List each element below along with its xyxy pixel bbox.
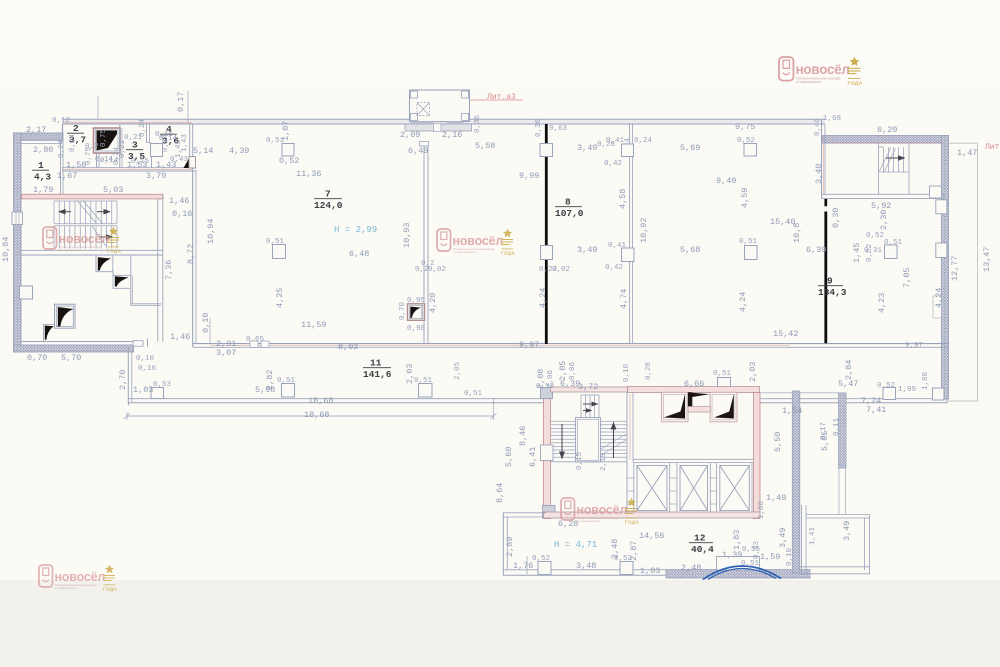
- svg-text:5,60: 5,60: [504, 447, 514, 467]
- svg-text:6,41: 6,41: [528, 447, 538, 467]
- svg-text:0,24: 0,24: [139, 118, 147, 137]
- svg-text:0,42: 0,42: [605, 264, 623, 272]
- svg-text:11,36: 11,36: [296, 169, 322, 179]
- svg-text:0,11: 0,11: [833, 417, 841, 436]
- svg-text:2,09: 2,09: [400, 130, 420, 140]
- svg-text:6,20: 6,20: [877, 125, 897, 135]
- svg-text:0,36: 0,36: [474, 114, 482, 133]
- svg-text:14,56: 14,56: [639, 531, 665, 541]
- svg-text:4,25: 4,25: [275, 288, 285, 308]
- svg-text:9: 9: [827, 276, 833, 287]
- svg-text:Н = 4,71: Н = 4,71: [554, 540, 597, 550]
- svg-text:124,0: 124,0: [314, 200, 343, 211]
- svg-text:8,64: 8,64: [495, 483, 505, 503]
- svg-text:0,53: 0,53: [153, 381, 172, 389]
- svg-text:1,54: 1,54: [782, 406, 802, 416]
- svg-text:9,99: 9,99: [519, 171, 539, 181]
- svg-text:4,58: 4,58: [618, 189, 628, 209]
- svg-text:9,75: 9,75: [735, 122, 755, 132]
- svg-text:0,16: 0,16: [138, 365, 157, 373]
- svg-text:6,66: 6,66: [684, 379, 704, 389]
- svg-text:1,88: 1,88: [922, 372, 930, 390]
- svg-text:3,49: 3,49: [577, 245, 597, 255]
- svg-text:2,05: 2,05: [558, 361, 568, 381]
- svg-text:1,67: 1,67: [57, 171, 77, 181]
- svg-text:1,46: 1,46: [169, 196, 189, 206]
- svg-text:2,87: 2,87: [629, 541, 639, 561]
- svg-text:0,95: 0,95: [407, 297, 426, 305]
- svg-text:1,56: 1,56: [66, 160, 86, 170]
- svg-text:9,97: 9,97: [519, 340, 539, 350]
- svg-text:0,24: 0,24: [113, 146, 121, 165]
- svg-text:2: 2: [73, 123, 79, 134]
- svg-text:1,49: 1,49: [766, 493, 786, 503]
- svg-text:0,51: 0,51: [741, 560, 760, 568]
- svg-text:2,17: 2,17: [26, 125, 46, 135]
- svg-text:2,70: 2,70: [118, 370, 128, 390]
- svg-text:5,92: 5,92: [871, 201, 891, 211]
- svg-text:4,3: 4,3: [34, 172, 51, 183]
- svg-text:2,05: 2,05: [454, 361, 462, 380]
- svg-text:0,51: 0,51: [884, 239, 903, 247]
- svg-text:4,24: 4,24: [934, 288, 944, 308]
- svg-text:Лит.а3: Лит.а3: [486, 93, 516, 102]
- svg-text:2,30: 2,30: [879, 210, 889, 230]
- svg-text:6,48: 6,48: [349, 249, 369, 259]
- svg-text:4,24: 4,24: [738, 292, 748, 312]
- svg-text:3,49: 3,49: [842, 521, 852, 541]
- svg-text:3,70: 3,70: [146, 171, 166, 181]
- svg-text:9,97: 9,97: [905, 342, 923, 350]
- svg-text:141,6: 141,6: [363, 369, 392, 380]
- svg-text:7: 7: [325, 189, 331, 200]
- svg-text:6,49: 6,49: [408, 146, 428, 156]
- svg-text:0,14: 0,14: [95, 156, 114, 164]
- svg-text:0,10: 0,10: [201, 313, 211, 333]
- svg-text:0,2: 0,2: [85, 143, 99, 151]
- svg-text:1,43: 1,43: [181, 133, 189, 152]
- svg-text:134,3: 134,3: [818, 287, 847, 298]
- svg-text:2,06: 2,06: [547, 369, 555, 388]
- svg-text:9,49: 9,49: [716, 176, 736, 186]
- svg-text:3,49: 3,49: [577, 143, 597, 153]
- svg-text:107,0: 107,0: [555, 208, 584, 219]
- svg-text:0,51: 0,51: [739, 238, 758, 246]
- svg-text:12,77: 12,77: [950, 255, 960, 281]
- svg-text:2,03: 2,03: [405, 364, 415, 384]
- svg-text:3,48: 3,48: [576, 561, 596, 571]
- svg-text:2,80: 2,80: [33, 145, 53, 155]
- svg-text:0,42: 0,42: [604, 160, 622, 168]
- svg-text:0,46: 0,46: [814, 117, 822, 136]
- svg-text:0,52: 0,52: [877, 382, 895, 390]
- svg-text:1,59: 1,59: [760, 552, 780, 562]
- svg-text:0,51: 0,51: [277, 377, 296, 385]
- svg-text:0,10: 0,10: [623, 363, 631, 382]
- svg-text:0,30: 0,30: [831, 208, 841, 228]
- svg-text:Н = 2,99: Н = 2,99: [334, 225, 377, 235]
- svg-text:0,41: 0,41: [608, 242, 627, 250]
- svg-text:0,75: 0,75: [100, 128, 108, 147]
- svg-text:4,23: 4,23: [877, 293, 887, 313]
- svg-text:0,51: 0,51: [464, 390, 483, 398]
- svg-text:1,00: 1,00: [758, 500, 766, 519]
- svg-text:0,16: 0,16: [172, 209, 192, 219]
- svg-text:8,46: 8,46: [518, 426, 528, 446]
- svg-text:0,52: 0,52: [532, 555, 550, 563]
- svg-text:1,79: 1,79: [33, 185, 53, 195]
- svg-text:18,68: 18,68: [304, 410, 330, 420]
- svg-text:10,93: 10,93: [402, 222, 412, 248]
- svg-text:5,50: 5,50: [773, 432, 783, 452]
- svg-text:0,02: 0,02: [552, 266, 570, 274]
- svg-text:5,03: 5,03: [103, 185, 123, 195]
- svg-text:18,68: 18,68: [308, 396, 334, 406]
- svg-text:15,42: 15,42: [773, 329, 799, 339]
- svg-text:4,24: 4,24: [538, 288, 548, 308]
- svg-text:0,90: 0,90: [407, 325, 426, 333]
- svg-text:0,24: 0,24: [162, 133, 170, 152]
- svg-text:1,47: 1,47: [957, 148, 977, 158]
- svg-text:Лит: Лит: [984, 143, 1000, 152]
- svg-text:0,15: 0,15: [131, 158, 150, 166]
- svg-text:0,51: 0,51: [713, 370, 732, 378]
- svg-text:3,49: 3,49: [778, 528, 788, 548]
- svg-text:0,06: 0,06: [569, 361, 577, 380]
- svg-text:11,59: 11,59: [301, 320, 327, 330]
- svg-text:5,68: 5,68: [680, 245, 700, 255]
- svg-text:4,20: 4,20: [428, 293, 438, 313]
- svg-text:3,72: 3,72: [578, 382, 598, 392]
- svg-text:0,33: 0,33: [753, 540, 761, 559]
- svg-text:7,05: 7,05: [902, 268, 912, 288]
- svg-text:12: 12: [694, 533, 706, 544]
- svg-text:1,03: 1,03: [133, 385, 153, 395]
- svg-text:0,12: 0,12: [52, 117, 70, 125]
- svg-text:4,74: 4,74: [619, 289, 629, 309]
- svg-text:0,63: 0,63: [549, 125, 568, 133]
- svg-text:2,84: 2,84: [844, 360, 854, 380]
- svg-text:8: 8: [565, 197, 571, 208]
- svg-text:0,24: 0,24: [69, 133, 77, 152]
- svg-text:1,83: 1,83: [640, 566, 660, 576]
- svg-text:0,70: 0,70: [27, 353, 47, 363]
- svg-text:1,07: 1,07: [281, 121, 291, 141]
- svg-text:0,24: 0,24: [58, 139, 66, 158]
- svg-text:1: 1: [38, 160, 44, 171]
- svg-text:0,15: 0,15: [576, 451, 584, 470]
- svg-text:0,41: 0,41: [606, 137, 625, 145]
- svg-text:5,14: 5,14: [193, 146, 213, 156]
- svg-text:0,70: 0,70: [399, 301, 407, 320]
- svg-text:0,2: 0,2: [421, 260, 435, 268]
- svg-text:1,68: 1,68: [823, 115, 841, 123]
- svg-text:1,76: 1,76: [513, 561, 533, 571]
- svg-text:0,10: 0,10: [136, 355, 155, 363]
- svg-text:1,41: 1,41: [809, 526, 817, 545]
- svg-text:0,17: 0,17: [820, 422, 828, 440]
- svg-text:5,70: 5,70: [61, 353, 81, 363]
- svg-text:8,02: 8,02: [338, 342, 358, 352]
- svg-text:0,24: 0,24: [634, 137, 653, 145]
- svg-text:2,48: 2,48: [681, 563, 701, 573]
- svg-text:10,84: 10,84: [1, 236, 11, 262]
- svg-text:0,36: 0,36: [535, 118, 543, 137]
- svg-text:40,4: 40,4: [691, 544, 714, 555]
- svg-text:7,41: 7,41: [866, 405, 886, 415]
- svg-text:6,39: 6,39: [806, 245, 826, 255]
- svg-text:2,16: 2,16: [442, 130, 462, 140]
- svg-text:4,59: 4,59: [740, 188, 750, 208]
- svg-text:1,46: 1,46: [170, 332, 190, 342]
- svg-text:4,39: 4,39: [229, 146, 249, 156]
- svg-text:2,82: 2,82: [265, 370, 275, 390]
- svg-text:10,8: 10,8: [792, 223, 802, 243]
- svg-text:1,45: 1,45: [852, 243, 862, 263]
- svg-text:8,72: 8,72: [186, 244, 196, 264]
- svg-text:0,52: 0,52: [866, 232, 884, 240]
- svg-text:0,52: 0,52: [737, 137, 755, 145]
- svg-text:0,51: 0,51: [266, 238, 285, 246]
- svg-text:2,19: 2,19: [600, 453, 608, 471]
- svg-text:1,83: 1,83: [732, 530, 742, 550]
- svg-text:0,52: 0,52: [279, 156, 299, 166]
- svg-text:0,17: 0,17: [176, 92, 186, 112]
- svg-text:1,39: 1,39: [722, 550, 742, 560]
- svg-text:1,99: 1,99: [898, 386, 916, 394]
- svg-text:3,40: 3,40: [814, 164, 824, 184]
- svg-text:0,10: 0,10: [786, 547, 794, 566]
- svg-text:10,94: 10,94: [206, 218, 216, 244]
- svg-text:2,48: 2,48: [610, 539, 620, 559]
- svg-text:7,36: 7,36: [164, 260, 174, 280]
- svg-text:5,69: 5,69: [680, 143, 700, 153]
- svg-text:2,03: 2,03: [748, 362, 758, 382]
- svg-text:10,92: 10,92: [639, 217, 649, 243]
- svg-text:2,89: 2,89: [505, 537, 515, 557]
- svg-text:0,43: 0,43: [170, 156, 189, 164]
- svg-text:0,51: 0,51: [414, 377, 433, 385]
- svg-text:3,07: 3,07: [216, 348, 236, 358]
- svg-text:11: 11: [370, 358, 382, 369]
- svg-text:2,08: 2,08: [536, 369, 546, 389]
- svg-text:13,47: 13,47: [982, 246, 992, 272]
- svg-text:0,52: 0,52: [866, 244, 874, 262]
- svg-text:5,58: 5,58: [475, 141, 495, 151]
- svg-text:0,28: 0,28: [645, 362, 653, 380]
